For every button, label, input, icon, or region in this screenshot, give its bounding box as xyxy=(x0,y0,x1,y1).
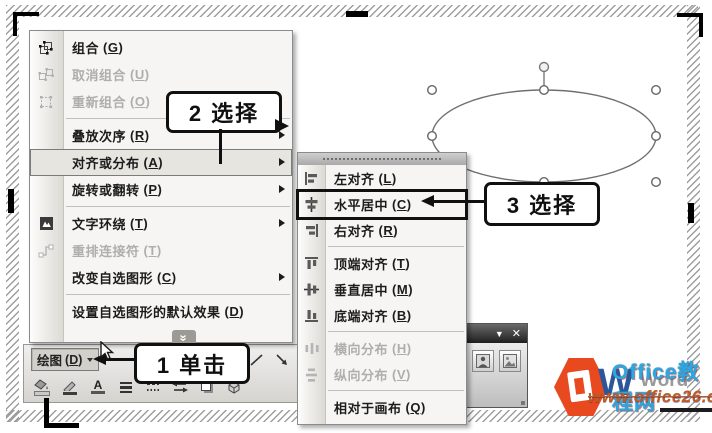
menu-item-key: (O) xyxy=(130,94,150,109)
step1-callout-label: 1 单击 xyxy=(157,348,227,380)
submenu-arrow-icon xyxy=(279,219,285,227)
menu-item-change-autoshape[interactable]: 改变自选图形 (C) xyxy=(30,264,292,291)
selection-handle-middle-right[interactable] xyxy=(652,132,661,141)
menu-item-label: 底端对齐 xyxy=(334,306,388,325)
menu-item-key: (A) xyxy=(144,155,164,170)
reroute-connectors-icon xyxy=(38,243,54,259)
menu-separator xyxy=(328,331,464,332)
canvas-resize-handle-top-middle[interactable] xyxy=(346,11,368,17)
regroup-icon xyxy=(38,94,54,110)
menu-item-label: 旋转或翻转 xyxy=(72,180,140,199)
menu-item-key: (V) xyxy=(392,367,411,382)
distribute-vertically-icon xyxy=(304,367,319,383)
menu-item-set-autoshape-defaults[interactable]: 设置自选图形的默认效果 (D) xyxy=(30,298,292,325)
step2-callout: 2 选择 xyxy=(166,91,282,133)
align-middle-icon xyxy=(304,282,319,297)
arrow-icon xyxy=(274,352,290,368)
canvas-resize-handle-bottom-left[interactable] xyxy=(44,398,79,428)
step3-highlight-box xyxy=(296,189,468,220)
floating-toolbar-titlebar[interactable]: ▼ ✕ xyxy=(467,324,527,343)
menu-item-reroute-connectors: 重排连接符 (T) xyxy=(30,237,292,264)
menu-item-key: (U) xyxy=(130,67,150,82)
distribute-horizontally-icon xyxy=(304,341,320,356)
person-picture-icon xyxy=(476,354,490,368)
align-right-icon xyxy=(304,223,319,238)
align-bottom-icon xyxy=(304,308,319,323)
step2-arrow-icon xyxy=(275,119,289,133)
floating-toolbar: ▼ ✕ xyxy=(466,323,528,408)
submenu-arrow-icon xyxy=(279,273,285,281)
menu-item-label: 横向分布 xyxy=(334,339,388,358)
submenu-item-align-middle[interactable]: 垂直居中 (M) xyxy=(298,276,466,302)
menu-item-key: (L) xyxy=(379,171,397,186)
menu-item-label: 纵向分布 xyxy=(334,365,388,384)
ungroup-icon xyxy=(38,67,54,83)
menu-item-group[interactable]: 组合 (G) xyxy=(30,34,292,61)
menu-item-label: 设置自选图形的默认效果 xyxy=(72,302,221,321)
menu-item-text-wrapping[interactable]: 文字环绕 (T) xyxy=(30,210,292,237)
step2-callout-label: 2 选择 xyxy=(189,96,259,128)
menu-item-key: (T) xyxy=(130,216,148,231)
font-color-button[interactable]: A xyxy=(85,375,111,400)
menu-item-label: 重排连接符 xyxy=(72,241,140,260)
menu-item-label: 取消组合 xyxy=(72,65,126,84)
canvas-resize-handle-top-right[interactable] xyxy=(677,13,703,37)
menu-item-key: (C) xyxy=(157,270,177,285)
selection-handle-top-right[interactable] xyxy=(652,86,661,95)
menu-item-key: (T) xyxy=(392,256,410,271)
submenu-item-relative-to-canvas[interactable]: 相对于画布 (Q) xyxy=(298,394,466,420)
submenu-drag-handle[interactable] xyxy=(298,153,466,165)
submenu-item-distribute-vertically: 纵向分布 (V) xyxy=(298,361,466,387)
menu-separator xyxy=(66,294,290,295)
submenu-item-align-bottom[interactable]: 底端对齐 (B) xyxy=(298,302,466,328)
menu-item-key: (T) xyxy=(144,243,162,258)
menu-item-label: 对齐或分布 xyxy=(72,153,140,172)
line-style-icon xyxy=(118,379,134,395)
submenu-item-align-right[interactable]: 右对齐 (R) xyxy=(298,217,466,243)
draw-menu: 组合 (G) 取消组合 (U) 重新组合 (O) 叠放次序 (R) 对齐或分布 … xyxy=(29,30,293,343)
menu-item-label: 右对齐 xyxy=(334,221,375,240)
menu-item-key: (R) xyxy=(379,223,399,238)
menu-item-key: (R) xyxy=(130,128,150,143)
rotation-handle[interactable] xyxy=(540,63,549,72)
menu-item-key: (G) xyxy=(103,40,123,55)
submenu-arrow-icon xyxy=(279,185,285,193)
align-left-icon xyxy=(304,171,319,186)
toolbar-collapse-icon[interactable]: ▼ xyxy=(495,329,504,339)
submenu-item-align-left[interactable]: 左对齐 (L) xyxy=(298,165,466,191)
font-letter: A xyxy=(94,380,103,390)
word-logo-letter: W xyxy=(598,362,634,405)
line-color-button[interactable] xyxy=(57,375,83,400)
submenu-item-distribute-horizontally: 横向分布 (H) xyxy=(298,335,466,361)
menu-item-align-or-distribute[interactable]: 对齐或分布 (A) xyxy=(30,149,292,176)
word-drawing-canvas: 绘图(D) xyxy=(0,0,712,433)
insert-picture-button[interactable] xyxy=(499,350,521,372)
canvas-border-left[interactable] xyxy=(6,5,19,422)
word-logo-text: Word xyxy=(640,370,688,392)
menu-item-key: (H) xyxy=(392,341,412,356)
step2-pointer-line xyxy=(219,129,222,164)
group-icon xyxy=(38,40,54,56)
drag-handle-dots-icon xyxy=(323,158,441,160)
draw-menu-button[interactable]: 绘图(D) xyxy=(31,348,99,371)
menu-item-label: 重新组合 xyxy=(72,92,126,111)
step3-callout-label: 3 选择 xyxy=(507,188,577,220)
menu-item-key: (D) xyxy=(225,304,245,319)
fill-color-button[interactable] xyxy=(29,375,55,400)
menu-item-label: 文字环绕 xyxy=(72,214,126,233)
menu-item-label: 叠放次序 xyxy=(72,126,126,145)
line-icon xyxy=(249,352,265,368)
menu-separator xyxy=(328,246,464,247)
mouse-cursor-icon xyxy=(98,341,116,361)
menu-item-key: (B) xyxy=(392,308,412,323)
canvas-resize-handle-left-middle[interactable] xyxy=(8,189,14,213)
menu-item-label: 顶端对齐 xyxy=(334,254,388,273)
menu-item-label: 改变自选图形 xyxy=(72,268,153,287)
step3-callout: 3 选择 xyxy=(484,182,600,226)
menu-item-ungroup: 取消组合 (U) xyxy=(30,61,292,88)
menu-item-label: 左对齐 xyxy=(334,169,375,188)
menu-item-key: (P) xyxy=(144,182,163,197)
canvas-resize-handle-right-middle[interactable] xyxy=(688,203,694,223)
floating-toolbar-body xyxy=(467,343,527,372)
menu-separator xyxy=(328,390,464,391)
draw-button-label: 绘图 xyxy=(37,350,62,369)
selection-handle-top-left[interactable] xyxy=(428,86,437,95)
arrow-tool-button[interactable] xyxy=(269,348,294,372)
office-logo-icon xyxy=(554,358,608,416)
menu-item-key: (Q) xyxy=(406,400,426,415)
toolbar-resize-grip[interactable] xyxy=(521,401,525,405)
selection-handle-top-center[interactable] xyxy=(540,86,549,95)
pencil-icon xyxy=(62,380,78,391)
menu-item-label: 相对于画布 xyxy=(334,398,402,417)
submenu-item-align-top[interactable]: 顶端对齐 (T) xyxy=(298,250,466,276)
menu-item-rotate-or-flip[interactable]: 旋转或翻转 (P) xyxy=(30,176,292,203)
submenu-arrow-icon xyxy=(279,158,285,166)
landscape-picture-icon xyxy=(503,354,517,368)
selection-handle-middle-left[interactable] xyxy=(428,132,437,141)
fill-bucket-icon xyxy=(34,379,50,390)
text-wrapping-icon xyxy=(39,216,54,231)
menu-item-label: 组合 xyxy=(72,38,99,57)
menu-item-label: 垂直居中 xyxy=(334,280,388,299)
toolbar-close-icon[interactable]: ✕ xyxy=(512,327,521,340)
menu-item-key: (M) xyxy=(392,282,413,297)
step1-callout: 1 单击 xyxy=(134,343,250,384)
align-top-icon xyxy=(304,256,319,271)
selection-handle-bottom-right[interactable] xyxy=(652,178,661,187)
draw-button-key: (D) xyxy=(65,353,82,367)
insert-clipart-button[interactable] xyxy=(472,350,494,372)
menu-separator xyxy=(66,206,290,207)
